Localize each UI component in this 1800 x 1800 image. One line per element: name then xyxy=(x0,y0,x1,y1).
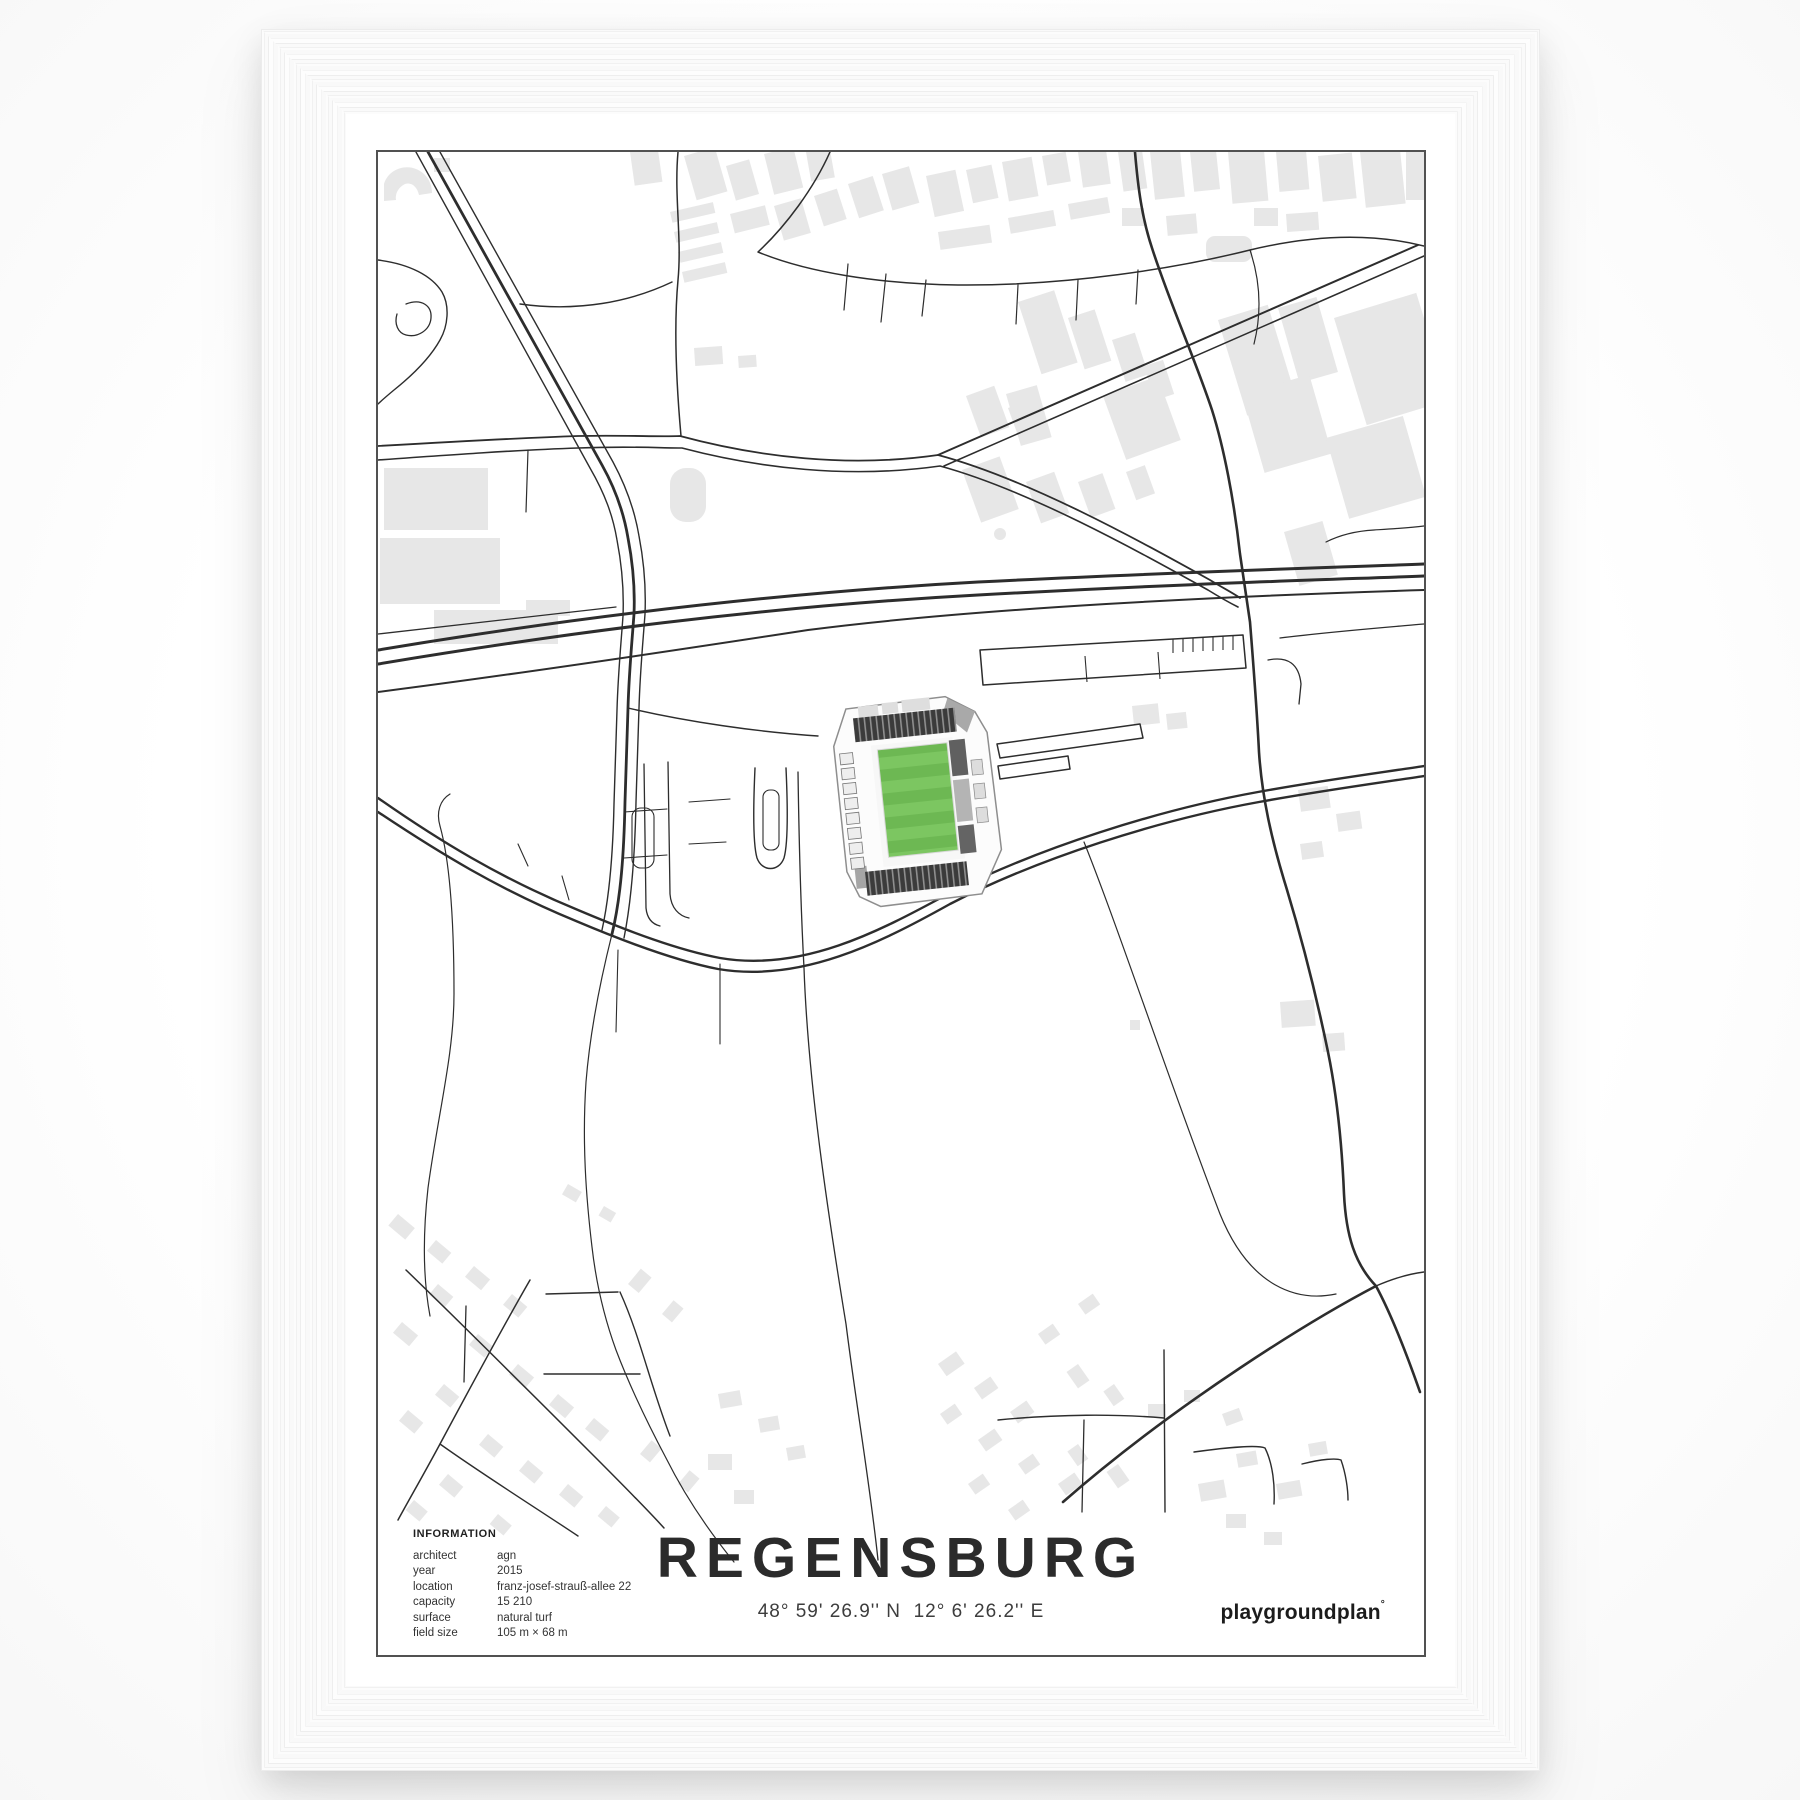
frame-right-molding xyxy=(1455,30,1539,1770)
picture-frame: INFORMATION architect agn year 2015 loca… xyxy=(262,30,1539,1770)
product-photo-scene: INFORMATION architect agn year 2015 loca… xyxy=(0,0,1800,1800)
brand-mark: ° xyxy=(1381,1599,1385,1610)
stadium xyxy=(830,691,1006,909)
frame-bottom-molding xyxy=(262,1686,1539,1770)
brand-logo: playgroundplan° xyxy=(1220,1601,1385,1625)
stadium-street-map xyxy=(378,152,1424,1655)
frame-left-molding xyxy=(262,30,346,1770)
info-row: field size 105 m × 68 m xyxy=(413,1626,743,1641)
brand-name: playgroundplan xyxy=(1220,1601,1380,1624)
poster: INFORMATION architect agn year 2015 loca… xyxy=(376,150,1426,1657)
pitch xyxy=(877,743,958,858)
frame-top-molding xyxy=(262,30,1539,114)
poster-title: REGENSBURG xyxy=(378,1530,1424,1587)
